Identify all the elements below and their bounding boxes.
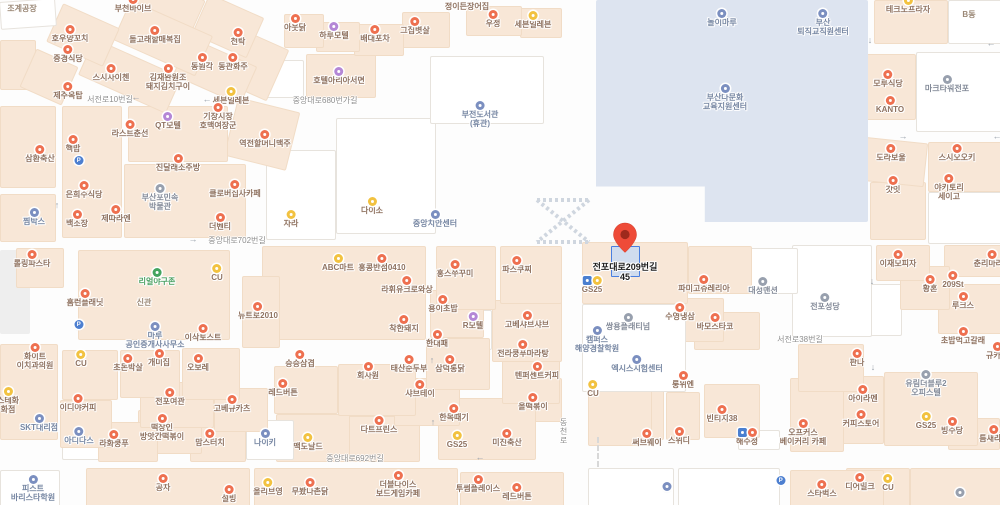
- poi-label: 수영냉삼: [665, 313, 694, 322]
- food-icon: [953, 144, 962, 153]
- poi[interactable]: 호우양꼬치: [52, 25, 89, 44]
- food-icon: [519, 340, 528, 349]
- poi[interactable]: 자라: [284, 210, 299, 229]
- poi[interactable]: CU: [75, 350, 87, 369]
- poi[interactable]: 이디야커피: [60, 394, 97, 413]
- direction-arrow: ↑: [55, 200, 60, 210]
- poi[interactable]: 진달래소주방: [156, 154, 200, 173]
- poi-label: 홍스쭈꾸미: [437, 270, 474, 279]
- poi-label: 모루식당: [873, 80, 902, 89]
- poi-label: 제따라엔: [101, 215, 130, 224]
- gray-icon: [942, 75, 951, 84]
- poi-label: 루크스: [952, 302, 974, 311]
- poi-label: 놀이마루: [707, 19, 736, 28]
- poi[interactable]: 춘리마라탕: [974, 250, 1000, 269]
- poi-label: 텐퍼센트커피: [515, 372, 559, 381]
- poi[interactable]: 백소장: [66, 210, 88, 229]
- poi-label: 규카츠: [986, 352, 1000, 361]
- public-icon: [819, 9, 828, 18]
- poi[interactable]: 신관: [137, 299, 152, 308]
- busstop-icon: [583, 276, 592, 285]
- poi-label: 한대패: [426, 340, 448, 349]
- poi-label: 다트프린스: [361, 426, 398, 435]
- poi[interactable]: 전라쿵푸마라탕: [497, 340, 549, 359]
- poi[interactable]: 라휘유크로와상: [381, 276, 433, 295]
- poi[interactable]: 부산퇴직교직원센터: [797, 9, 849, 36]
- poi[interactable]: 롤링파스타: [14, 250, 51, 269]
- food-icon: [28, 250, 37, 259]
- pin-address-label[interactable]: 전포대로209번길 45: [593, 262, 658, 282]
- poi[interactable]: 레드버튼: [502, 483, 531, 502]
- poi[interactable]: 파스쿠찌: [502, 256, 531, 275]
- poi[interactable]: 다트프린스: [361, 416, 398, 435]
- poi[interactable]: 부산포민속박물관: [142, 184, 179, 211]
- road-label: 동천로: [558, 418, 569, 445]
- poi[interactable]: 김재완원조돼지김치구이: [146, 64, 190, 91]
- poi-label: 백소장: [66, 220, 88, 229]
- poi[interactable]: 샤브테이: [405, 380, 434, 399]
- poi[interactable]: 캠퍼스해양경찰학원: [575, 326, 619, 353]
- poi-label: 맘스터치: [195, 439, 224, 448]
- motel-icon: [164, 112, 173, 121]
- poi-label: 이삭토스트: [185, 334, 222, 343]
- pin-address-line1: 전포대로209번길: [593, 262, 658, 272]
- poi[interactable]: 빙수당: [941, 417, 963, 436]
- poi-label: 빙수당: [941, 427, 963, 436]
- poi[interactable]: 미진축산: [492, 429, 521, 448]
- poi[interactable]: 수영냉삼: [665, 303, 694, 322]
- poi[interactable]: GS25: [447, 431, 467, 450]
- poi[interactable]: 무봤나촌닭: [292, 478, 329, 497]
- poi[interactable]: QT모텔: [155, 112, 181, 131]
- poi[interactable]: 홍콩반점0410: [358, 254, 405, 273]
- poi[interactable]: 마루공인중개사사무소: [126, 322, 185, 349]
- food-icon: [817, 480, 826, 489]
- direction-arrow: ↑: [430, 355, 435, 365]
- poi-label: 레드버튼: [268, 389, 297, 398]
- public-icon: [663, 482, 672, 491]
- road-label: 서전로10번길: [87, 94, 133, 105]
- poi[interactable]: [956, 488, 965, 498]
- poi-label: 아디다스: [64, 437, 93, 446]
- poi-label: 홍콩반점0410: [358, 264, 405, 273]
- poi[interactable]: KANTO: [876, 96, 904, 115]
- store-icon: [263, 478, 272, 487]
- poi-label: B동: [962, 11, 975, 20]
- city-block: [910, 468, 1000, 505]
- poi[interactable]: 다이소: [361, 197, 383, 216]
- poi[interactable]: 규카츠: [986, 342, 1000, 361]
- poi-label: 틈새라면: [979, 435, 1000, 444]
- poi[interactable]: 찜박스: [23, 208, 45, 227]
- poi[interactable]: 아웃닭: [284, 14, 306, 33]
- poi[interactable]: [75, 156, 84, 166]
- poi[interactable]: 레드버튼: [268, 379, 297, 398]
- store-icon: [334, 254, 343, 263]
- poi[interactable]: 고베샤브샤브: [505, 311, 549, 330]
- poi[interactable]: B동: [962, 11, 975, 20]
- poi[interactable]: 은희수식당: [66, 181, 103, 200]
- poi[interactable]: 부천바이브: [115, 0, 152, 14]
- poi[interactable]: CU: [211, 264, 223, 283]
- poi-label: ABC마트: [322, 264, 354, 273]
- poi-label: 공인중개사사무소: [126, 341, 185, 350]
- food-icon: [988, 250, 997, 259]
- food-icon: [885, 96, 894, 105]
- poi[interactable]: 맘스터치: [195, 429, 224, 448]
- direction-arrow: ↑: [431, 417, 436, 427]
- food-icon: [944, 174, 953, 183]
- poi[interactable]: 초돈박살: [113, 354, 142, 373]
- food-icon: [31, 343, 40, 352]
- poi[interactable]: 뉴트로2010: [238, 302, 278, 321]
- food-icon: [233, 28, 242, 37]
- poi[interactable]: 209St: [942, 271, 963, 290]
- poi[interactable]: 테크노프라자: [886, 0, 930, 15]
- store-icon: [884, 474, 893, 483]
- poi[interactable]: 더블다이스보드게임카페: [376, 471, 420, 498]
- poi[interactable]: [663, 482, 672, 492]
- gray-icon: [623, 313, 632, 322]
- food-icon: [253, 302, 262, 311]
- poi-label: 개미집: [148, 359, 170, 368]
- poi-label: 조계공장: [7, 5, 36, 14]
- poi-label: 이디야커피: [60, 404, 97, 413]
- poi[interactable]: 이재모피자: [880, 250, 917, 269]
- poi[interactable]: 커피스토어: [843, 410, 880, 429]
- poi-label: 올리브영: [253, 488, 282, 497]
- poi[interactable]: CU: [882, 474, 894, 493]
- poi[interactable]: [777, 476, 786, 486]
- poi[interactable]: 디어밀크: [845, 473, 874, 492]
- food-icon: [675, 427, 684, 436]
- food-icon: [378, 254, 387, 263]
- poi-label: 찜박스: [23, 218, 45, 227]
- poi-label: 스타벅스: [807, 490, 836, 499]
- city-block: [500, 246, 562, 304]
- food-icon: [858, 385, 867, 394]
- poi-label: 바모스타코: [697, 323, 734, 332]
- pin-address-line2: 45: [593, 272, 658, 282]
- poi-label: 호우양꼬치: [52, 35, 89, 44]
- poi-label: 올떡볶이: [518, 403, 547, 412]
- poi[interactable]: 아디다스: [64, 427, 93, 446]
- poi[interactable]: 한대패: [426, 330, 448, 349]
- food-icon: [512, 483, 521, 492]
- poi[interactable]: 한목때기: [439, 404, 468, 423]
- poi[interactable]: 개미집: [148, 349, 170, 368]
- food-icon: [679, 371, 688, 380]
- poi[interactable]: 핵밥: [66, 135, 81, 154]
- gray-icon: [156, 184, 165, 193]
- poi[interactable]: ABC마트: [322, 254, 354, 273]
- poi[interactable]: 회사원: [357, 362, 379, 381]
- poi[interactable]: 써브웨이: [632, 429, 661, 448]
- poi[interactable]: 리얼야구존: [139, 268, 176, 287]
- food-icon: [126, 120, 135, 129]
- poi[interactable]: 홍스쭈꾸미: [437, 260, 474, 279]
- poi[interactable]: 우정: [486, 10, 501, 29]
- poi[interactable]: 더벤티: [209, 213, 231, 232]
- poi[interactable]: 스시오오키: [939, 144, 976, 163]
- poi-label: 그집볏살: [400, 27, 429, 36]
- poi-label: 삼환축산: [25, 155, 54, 164]
- food-icon: [883, 70, 892, 79]
- parking-icon: [75, 320, 84, 329]
- poi-label: 오보레: [187, 364, 209, 373]
- poi[interactable]: 빈티지38: [707, 405, 738, 424]
- food-icon: [473, 475, 482, 484]
- poi[interactable]: 홈런플래닛: [67, 289, 104, 308]
- poi[interactable]: R모텔: [463, 312, 484, 331]
- poi-label: 교육지원센터: [703, 103, 747, 112]
- poi[interactable]: 룽위엔: [672, 371, 694, 390]
- poi[interactable]: 조계공장: [7, 5, 36, 14]
- public-icon: [74, 427, 83, 436]
- poi[interactable]: 초밥먹고갈래: [941, 327, 985, 346]
- poi[interactable]: 제따라엔: [101, 205, 130, 224]
- poi[interactable]: 클로버집사카페: [209, 180, 261, 199]
- poi[interactable]: 호텔아리아서면: [313, 67, 365, 86]
- poi[interactable]: 갓잇: [886, 176, 901, 195]
- gray-icon: [956, 488, 965, 497]
- road-label: 서전로38번길: [777, 334, 823, 345]
- poi[interactable]: 피스트바리스타학원: [11, 475, 55, 502]
- poi-label: 착한돼지: [389, 325, 418, 334]
- poi[interactable]: 기장시장호맥여장군: [200, 103, 237, 130]
- poi[interactable]: SKT대리점: [20, 414, 58, 433]
- food-icon: [35, 145, 44, 154]
- poi-label: 우정: [486, 20, 501, 29]
- food-icon: [717, 405, 726, 414]
- poi[interactable]: 삼환축산: [25, 145, 54, 164]
- poi[interactable]: 틈새라면: [979, 425, 1000, 444]
- poi[interactable]: 맥도날드: [293, 433, 322, 452]
- poi[interactable]: 용이초밥: [428, 295, 457, 314]
- poi[interactable]: 야키토리세이고: [934, 174, 963, 201]
- poi[interactable]: 승승삼겹: [285, 350, 314, 369]
- location-pin[interactable]: [612, 222, 638, 259]
- food-icon: [711, 313, 720, 322]
- poi-label: 초밥먹고갈래: [941, 337, 985, 346]
- poi-label: 뉴트로2010: [238, 312, 278, 321]
- poi[interactable]: 올떡볶이: [518, 393, 547, 412]
- poi[interactable]: 부산다문화교육지원센터: [703, 84, 747, 111]
- poi[interactable]: 그집볏살: [400, 17, 429, 36]
- poi[interactable]: 모루식당: [873, 70, 902, 89]
- poi-label: 보드게임카페: [376, 490, 420, 499]
- poi[interactable]: 판나: [850, 349, 865, 368]
- motel-icon: [335, 67, 344, 76]
- poi[interactable]: 착한돼지: [389, 315, 418, 334]
- poi[interactable]: 나이키: [254, 429, 276, 448]
- poi[interactable]: CU: [587, 380, 599, 399]
- poi[interactable]: 동관화주: [218, 53, 247, 72]
- motel-icon: [469, 312, 478, 321]
- poi[interactable]: 하루모텔: [319, 22, 348, 41]
- poi-label: 호맥여장군: [200, 122, 237, 131]
- poi[interactable]: 오프커스베이커리 카페: [780, 419, 826, 446]
- food-icon: [993, 342, 1000, 351]
- poi[interactable]: 투썸플레이스: [456, 475, 500, 494]
- city-block: [254, 468, 458, 505]
- poi[interactable]: 떡장인방앗간떡볶이: [140, 414, 184, 441]
- public-icon: [35, 414, 44, 423]
- poi[interactable]: 동원각: [191, 53, 213, 72]
- food-icon: [925, 275, 934, 284]
- poi[interactable]: 설빙: [222, 485, 237, 504]
- poi-label: 화점: [1, 406, 16, 415]
- poi-label: 홈런플래닛: [67, 299, 104, 308]
- poi-label: 엑시스시험센터: [611, 365, 663, 374]
- poi[interactable]: 파미고쥬레리아: [678, 275, 730, 294]
- poi[interactable]: 화이트이치과의원: [17, 343, 54, 370]
- food-icon: [228, 395, 237, 404]
- poi-label: 파미고쥬레리아: [678, 285, 730, 294]
- poi[interactable]: 태산순두부: [391, 355, 428, 374]
- food-icon: [989, 425, 998, 434]
- poi[interactable]: 천탁: [231, 28, 246, 47]
- poi-label: 다이소: [361, 207, 383, 216]
- food-icon: [502, 429, 511, 438]
- food-icon: [433, 330, 442, 339]
- food-icon: [291, 14, 300, 23]
- poi[interactable]: 마크타워전포: [925, 75, 969, 94]
- poi[interactable]: 중앙치안센터: [413, 210, 457, 229]
- food-icon: [63, 82, 72, 91]
- poi[interactable]: 세븐일레븐: [515, 11, 552, 30]
- food-icon: [512, 256, 521, 265]
- poi[interactable]: 놀이마루: [707, 9, 736, 28]
- poi-label: 라휘유크로와상: [381, 286, 433, 295]
- poi[interactable]: 전포성당: [810, 293, 839, 312]
- food-icon: [198, 53, 207, 62]
- poi[interactable]: 도라보울: [876, 144, 905, 163]
- poi[interactable]: 돌고래할매복집: [129, 26, 181, 45]
- poi[interactable]: 중경식당: [53, 45, 82, 64]
- poi[interactable]: 부전도서관(휴관): [462, 101, 499, 128]
- poi[interactable]: 공차: [156, 474, 171, 493]
- poi-label: 역전할머니맥주: [239, 140, 291, 149]
- poi[interactable]: 유림더블루2오피스텔: [905, 370, 946, 397]
- food-icon: [165, 388, 174, 397]
- poi-label: 스위디: [668, 437, 690, 446]
- poi-label: 정이든장어집: [445, 3, 489, 12]
- poi-label: 이치과의원: [17, 362, 54, 371]
- poi[interactable]: GS25: [916, 412, 936, 431]
- poi[interactable]: 정이든장어집: [445, 3, 489, 12]
- poi-label: 롤링파스타: [14, 260, 51, 269]
- poi[interactable]: 라스트춘선: [112, 120, 149, 139]
- poi[interactable]: 바모스타코: [697, 313, 734, 332]
- poi-label: GS25: [916, 422, 936, 431]
- poi-label: 마크타워전포: [925, 85, 969, 94]
- poi-label: 세븐일레븐: [515, 21, 552, 30]
- poi[interactable]: 고베규카츠: [214, 395, 251, 414]
- public-icon: [30, 208, 39, 217]
- poi[interactable]: 텐퍼센트커피: [515, 362, 559, 381]
- poi-label: 부천바이브: [115, 5, 152, 14]
- poi[interactable]: [75, 320, 84, 330]
- poi-label: 황혼: [923, 285, 938, 294]
- food-icon: [958, 327, 967, 336]
- food-icon: [528, 393, 537, 402]
- food-icon: [888, 176, 897, 185]
- gray-icon: [820, 293, 829, 302]
- poi[interactable]: 배대포차: [360, 25, 389, 44]
- public-icon: [633, 355, 642, 364]
- poi-label: 룽위엔: [672, 381, 694, 390]
- poi[interactable]: 라화쿵푸: [99, 430, 128, 449]
- poi[interactable]: 전포여관: [155, 388, 184, 407]
- food-icon: [886, 144, 895, 153]
- public-icon: [717, 9, 726, 18]
- poi-label: 한목때기: [439, 414, 468, 423]
- poi[interactable]: 스시사이첸: [93, 64, 130, 83]
- poi-label: 오피스텔: [911, 389, 940, 398]
- poi[interactable]: 제주옥탑: [53, 82, 82, 101]
- poi[interactable]: 엑시스시험센터: [611, 355, 663, 374]
- store-icon: [453, 431, 462, 440]
- poi-label: 해양경찰학원: [575, 345, 619, 354]
- map-canvas[interactable]: 전포대로209번길 45 조계공장부천바이브호우양꼬치돌고래할매복집천탁중경식당…: [0, 0, 1000, 505]
- poi[interactable]: 올리브영: [253, 478, 282, 497]
- food-icon: [157, 414, 166, 423]
- poi-label: 세이고: [938, 193, 960, 202]
- city-block: [678, 468, 780, 505]
- poi-label: 미진축산: [492, 439, 521, 448]
- store-icon: [213, 264, 222, 273]
- poi-label: 전포여관: [155, 398, 184, 407]
- food-icon: [375, 416, 384, 425]
- direction-arrow: →: [899, 131, 908, 141]
- poi[interactable]: 스테화화점: [0, 387, 19, 414]
- poi[interactable]: 이삭토스트: [185, 324, 222, 343]
- poi[interactable]: 삼덕통닭: [435, 355, 464, 374]
- food-icon: [63, 45, 72, 54]
- poi-label: 은희수식당: [66, 191, 103, 200]
- poi[interactable]: 해수정: [736, 428, 758, 447]
- poi-label: CU: [587, 390, 599, 399]
- poi[interactable]: 스위디: [668, 427, 690, 446]
- store-icon: [589, 380, 598, 389]
- food-icon: [173, 154, 182, 163]
- road-label: 중앙대로680번가길: [293, 95, 358, 106]
- food-icon: [68, 135, 77, 144]
- poi-label: 디어밀크: [845, 483, 874, 492]
- poi[interactable]: 황혼: [923, 275, 938, 294]
- poi[interactable]: 아이라멘: [848, 385, 877, 404]
- poi-label: KANTO: [876, 106, 904, 115]
- poi[interactable]: 루크스: [952, 292, 974, 311]
- poi[interactable]: 오보레: [187, 354, 209, 373]
- poi-label: R모텔: [463, 322, 484, 331]
- city-block: [62, 350, 118, 400]
- food-icon: [415, 380, 424, 389]
- poi[interactable]: 스타벅스: [807, 480, 836, 499]
- poi-label: 라화쿵푸: [99, 440, 128, 449]
- food-icon: [948, 271, 957, 280]
- poi-label: 스시사이첸: [93, 74, 130, 83]
- direction-arrow: →: [189, 234, 198, 244]
- poi-label: 나이키: [254, 439, 276, 448]
- food-icon: [748, 428, 757, 437]
- poi[interactable]: 역전할머니맥주: [239, 130, 291, 149]
- food-icon: [798, 419, 807, 428]
- poi[interactable]: 대성맨션: [748, 277, 777, 296]
- direction-arrow: ↓: [871, 362, 876, 372]
- food-icon: [522, 311, 531, 320]
